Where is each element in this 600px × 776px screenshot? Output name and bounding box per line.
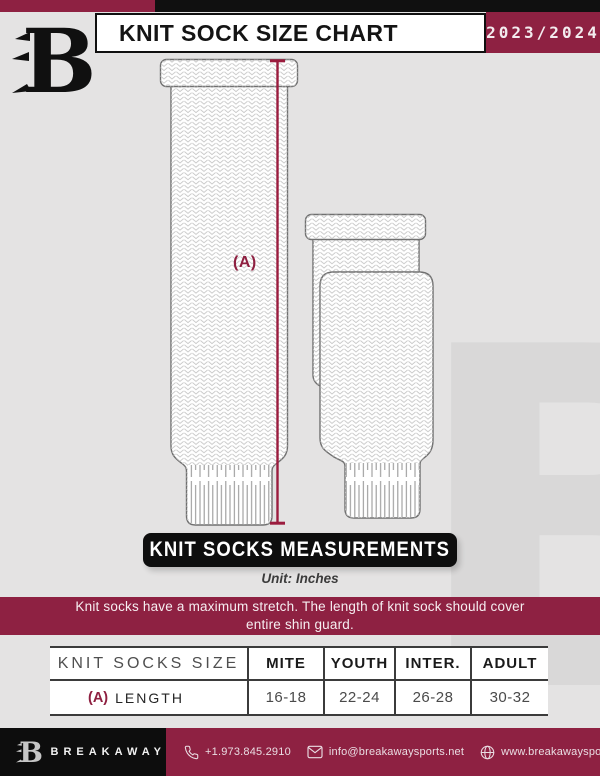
footer-contact-bar: +1.973.845.2910 info@breakawaysports.net… xyxy=(166,728,600,776)
svg-text:B: B xyxy=(19,737,41,768)
column-header-mite: MITE xyxy=(247,648,323,681)
length-value-adult: 30-32 xyxy=(470,681,548,714)
stretch-note-line2: entire shin guard. xyxy=(246,616,354,634)
row-label-length: (A) LENGTH xyxy=(50,681,247,714)
breakaway-footer-logo-icon: B xyxy=(16,737,42,768)
footer: B BREAKAWAY +1.973.845.2910 info@breakaw… xyxy=(0,728,600,776)
season-badge: 2023/2024 xyxy=(486,12,600,53)
measurements-banner: KNIT SOCKS MEASUREMENTS xyxy=(143,533,457,567)
column-header-inter: INTER. xyxy=(394,648,470,681)
length-value-youth: 22-24 xyxy=(323,681,394,714)
top-strip-black xyxy=(155,0,600,12)
length-measure-label: (A) xyxy=(233,254,257,272)
measurements-banner-text: KNIT SOCKS MEASUREMENTS xyxy=(150,538,450,562)
season-text: 2023/2024 xyxy=(486,23,600,42)
sock-small xyxy=(320,272,433,518)
knit-sock-size-chart-page: B KNIT SOCK SIZE CHART 2023/2024 B xyxy=(0,0,600,776)
svg-text:B: B xyxy=(22,14,92,110)
footer-website-text[interactable]: www.breakawaysports.net xyxy=(501,746,600,758)
page-title: KNIT SOCK SIZE CHART xyxy=(95,13,486,53)
phone-icon xyxy=(184,745,199,760)
globe-icon xyxy=(480,745,495,760)
unit-note: Unit: Inches xyxy=(0,571,600,586)
column-header-youth: YOUTH xyxy=(323,648,394,681)
footer-email-text[interactable]: info@breakawaysports.net xyxy=(329,746,464,758)
page-title-text: KNIT SOCK SIZE CHART xyxy=(119,20,398,47)
email-icon xyxy=(307,745,323,759)
size-table: KNIT SOCKS SIZE MITE YOUTH INTER. ADULT … xyxy=(50,646,548,716)
column-header-adult: ADULT xyxy=(470,648,548,681)
footer-website[interactable]: www.breakawaysports.net xyxy=(480,745,600,760)
breakaway-logo-icon: B xyxy=(12,14,92,115)
footer-brand: B BREAKAWAY xyxy=(0,728,166,776)
stretch-note-line1: Knit socks have a maximum stretch. The l… xyxy=(75,598,524,616)
row-label-prefix: (A) xyxy=(88,690,108,706)
row-label-text: LENGTH xyxy=(115,690,184,706)
footer-brand-name: BREAKAWAY xyxy=(51,746,167,758)
length-value-mite: 16-18 xyxy=(247,681,323,714)
footer-email[interactable]: info@breakawaysports.net xyxy=(307,745,464,759)
top-strip-maroon xyxy=(0,0,155,12)
length-value-inter: 26-28 xyxy=(394,681,470,714)
table-title: KNIT SOCKS SIZE xyxy=(50,648,247,681)
footer-phone[interactable]: +1.973.845.2910 xyxy=(184,745,291,760)
footer-phone-text[interactable]: +1.973.845.2910 xyxy=(205,746,291,758)
knit-socks-illustration xyxy=(140,55,460,530)
stretch-note-banner: Knit socks have a maximum stretch. The l… xyxy=(0,597,600,635)
